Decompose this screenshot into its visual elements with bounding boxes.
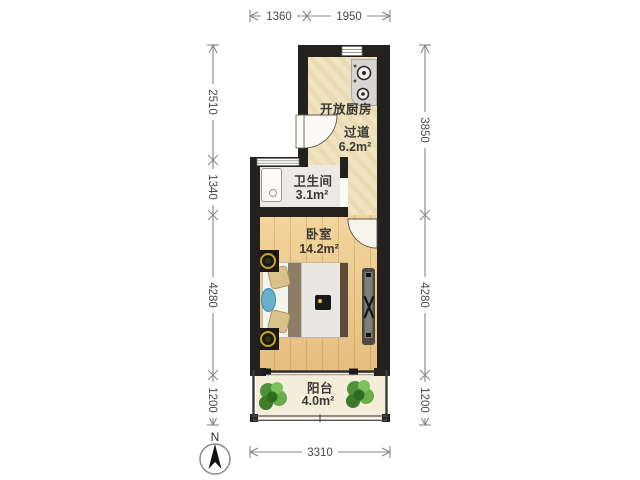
svg-text:1200: 1200: [418, 387, 430, 413]
room-area-balcony: 4.0m²: [302, 394, 335, 408]
room-label-hallway: 过道: [344, 122, 370, 141]
floor-plan: 1360 1950 3310 2510 1: [0, 0, 640, 480]
room-area-bedroom: 14.2m²: [299, 242, 339, 256]
radiator: [362, 268, 375, 345]
svg-text:4280: 4280: [206, 282, 218, 308]
room-label-bathroom: 卫生间: [293, 171, 332, 190]
balcony-post: [382, 414, 390, 422]
wall: [377, 45, 390, 375]
svg-text:3850: 3850: [418, 117, 430, 143]
bed-duvet-edge: [340, 263, 348, 337]
washer: [261, 168, 282, 202]
cushion: [261, 288, 276, 312]
svg-text:1340: 1340: [206, 174, 218, 200]
room-label-bedroom: 卧室: [306, 224, 332, 243]
svg-text:1360: 1360: [266, 11, 292, 23]
room-area-hallway: 6.2m²: [339, 140, 372, 154]
room-area-bathroom: 3.1m²: [296, 188, 329, 202]
wall: [250, 207, 348, 217]
wall: [374, 368, 390, 376]
dimension-left: 2510 1340 4280 1200: [206, 45, 220, 425]
wall: [250, 215, 260, 375]
dimension-right: 3850 4280 1200: [418, 45, 432, 425]
bed-tray: [315, 295, 331, 310]
north-arrow: N: [200, 430, 230, 474]
svg-text:N: N: [211, 430, 220, 444]
nightstand-lamp: [257, 250, 279, 272]
svg-text:4280: 4280: [418, 282, 430, 308]
bathroom-door-opening: [340, 178, 348, 208]
dimension-bottom: 3310: [250, 445, 390, 459]
svg-text:3310: 3310: [307, 447, 333, 459]
room-label-kitchen: 开放厨房: [320, 99, 372, 118]
svg-text:1950: 1950: [336, 11, 362, 23]
wall: [298, 45, 308, 115]
dimension-top: 1360 1950: [250, 9, 390, 23]
balcony-post: [250, 414, 258, 422]
nightstand-lamp: [257, 328, 279, 350]
wall: [340, 157, 348, 178]
svg-text:1200: 1200: [206, 387, 218, 413]
svg-text:2510: 2510: [206, 89, 218, 115]
bed-headboard: [288, 263, 301, 337]
wall: [250, 368, 266, 376]
